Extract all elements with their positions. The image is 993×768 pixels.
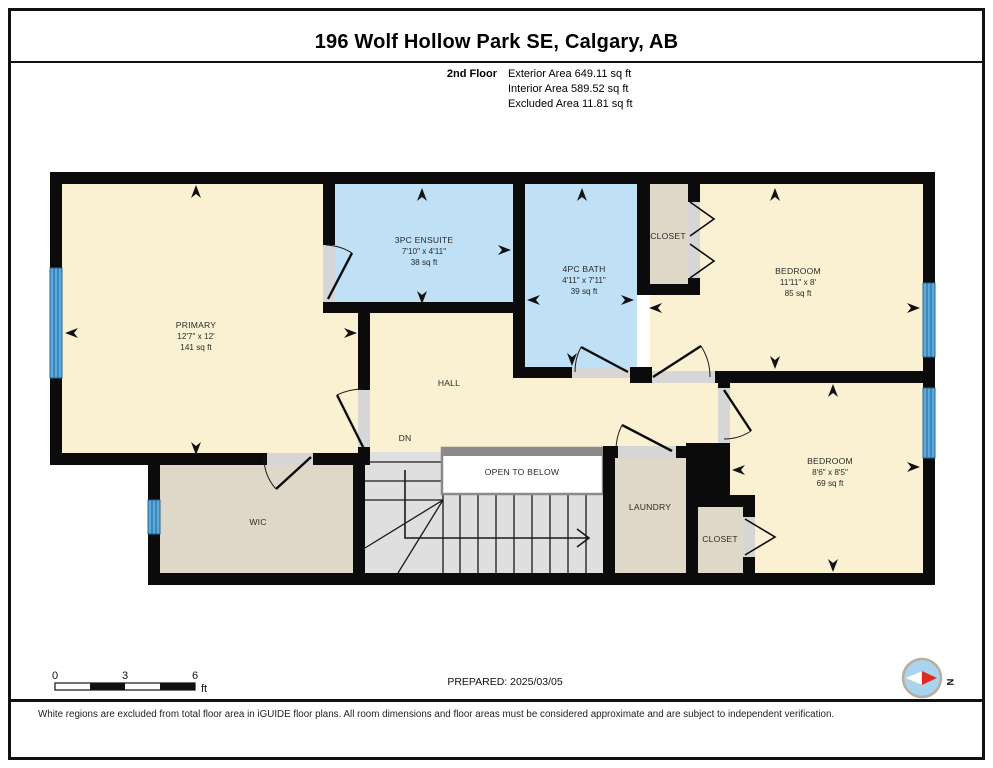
label-closet-bottom: CLOSET	[702, 534, 738, 544]
room-laundry	[615, 458, 686, 573]
room-primary	[62, 184, 323, 453]
label-laundry: LAUNDRY	[629, 502, 671, 512]
label-bedroom-bottom-dims: 8'6" x 8'5"	[812, 468, 848, 477]
window-bedroom-bottom	[923, 388, 935, 458]
label-dn: DN	[399, 433, 412, 443]
room-hall-mid	[513, 378, 603, 448]
label-bath-dims: 4'11" x 7'11"	[562, 276, 606, 285]
label-primary: PRIMARY	[176, 320, 216, 330]
floor-plan-page: 196 Wolf Hollow Park SE, Calgary, AB 2nd…	[0, 0, 993, 768]
label-ensuite-area: 38 sq ft	[411, 258, 439, 267]
label-ensuite-dims: 7'10" x 4'11"	[402, 247, 446, 256]
label-bedroom-top-dims: 11'11" x 8'	[780, 278, 817, 287]
label-ensuite: 3PC ENSUITE	[395, 235, 454, 245]
scale-unit: ft	[201, 683, 207, 695]
prepared-date: PREPARED: 2025/03/05	[355, 676, 655, 688]
label-wic: WIC	[249, 517, 266, 527]
room-hall-passage	[603, 378, 718, 446]
floor-plan-drawing: PRIMARY 12'7" x 12' 141 sq ft 3PC ENSUIT…	[0, 0, 993, 768]
label-primary-area: 141 sq ft	[180, 343, 212, 352]
scale-tick-0: 0	[52, 670, 58, 682]
label-bedroom-bottom: BEDROOM	[807, 456, 853, 466]
room-bedroom-bottom	[730, 383, 923, 573]
label-bedroom-bottom-area: 69 sq ft	[817, 479, 845, 488]
scale-tick-6: 6	[192, 670, 198, 682]
label-closet-top: CLOSET	[650, 231, 686, 241]
label-bedroom-top-area: 85 sq ft	[785, 289, 813, 298]
label-bedroom-top: BEDROOM	[775, 266, 821, 276]
scale-bar: 0 3 6 ft	[52, 670, 207, 695]
window-primary	[50, 268, 62, 378]
label-bath: 4PC BATH	[563, 264, 606, 274]
compass-north-label: N	[944, 679, 955, 686]
footer-divider	[11, 699, 982, 702]
label-primary-dims: 12'7" x 12'	[177, 332, 215, 341]
label-bath-area: 39 sq ft	[571, 287, 599, 296]
label-open-to-below: OPEN TO BELOW	[485, 467, 560, 477]
window-wic	[148, 500, 160, 534]
compass-icon: N	[903, 659, 955, 697]
disclaimer-text: White regions are excluded from total fl…	[38, 709, 958, 720]
label-hall: HALL	[438, 378, 460, 388]
window-bedroom-top	[923, 283, 935, 357]
scale-tick-3: 3	[122, 670, 128, 682]
